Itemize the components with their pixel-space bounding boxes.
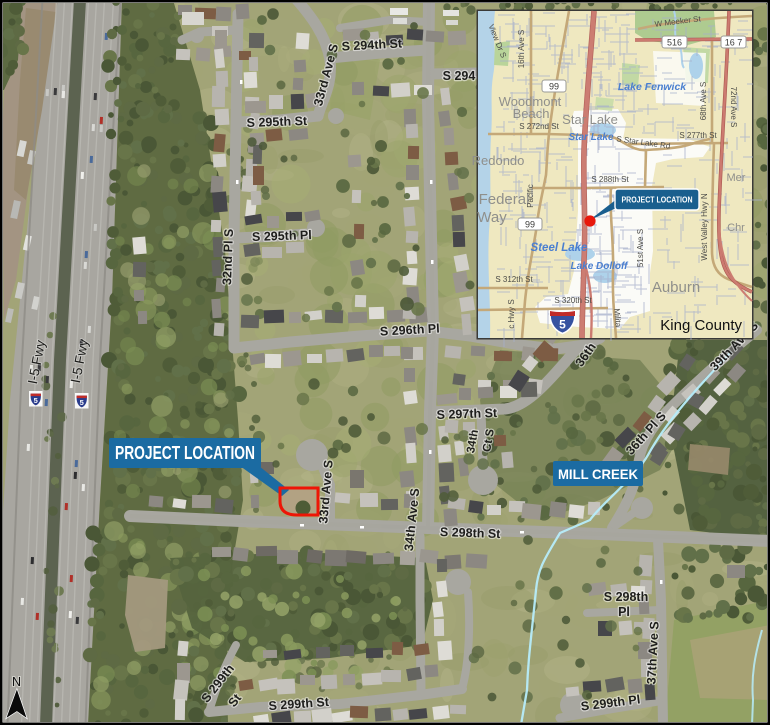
svg-text:Auburn: Auburn <box>652 279 700 296</box>
svg-text:Mer: Mer <box>727 172 746 184</box>
svg-text:S 298th St: S 298th St <box>440 525 502 541</box>
svg-text:Pl: Pl <box>618 605 630 619</box>
svg-text:Lake Dolloff: Lake Dolloff <box>570 261 629 272</box>
svg-text:MILL CREEK: MILL CREEK <box>558 466 638 482</box>
svg-text:516: 516 <box>667 38 682 48</box>
svg-text:5: 5 <box>34 396 38 405</box>
svg-text:S 320th St: S 320th St <box>554 296 592 305</box>
svg-text:72nd Ave S: 72nd Ave S <box>729 87 738 128</box>
svg-text:Way: Way <box>477 209 507 226</box>
svg-text:S 294: S 294 <box>443 69 476 83</box>
svg-text:Pacific: Pacific <box>526 184 535 208</box>
svg-text:Lake Fenwick: Lake Fenwick <box>618 81 687 93</box>
svg-text:16th Ave S: 16th Ave S <box>517 30 526 69</box>
svg-text:King County: King County <box>660 317 742 334</box>
svg-text:5: 5 <box>559 318 566 332</box>
svg-text:99: 99 <box>549 82 559 92</box>
svg-text:Chr: Chr <box>727 222 745 234</box>
svg-text:Beach: Beach <box>513 106 550 121</box>
svg-text:S 298th: S 298th <box>604 590 648 604</box>
svg-text:PROJECT LOCATION: PROJECT LOCATION <box>622 196 693 205</box>
svg-text:S 297th St: S 297th St <box>436 406 498 422</box>
svg-text:32nd Pl S: 32nd Pl S <box>220 228 236 285</box>
svg-text:51st Ave S: 51st Ave S <box>636 229 645 267</box>
svg-text:N: N <box>12 675 21 689</box>
svg-text:Star Lake: Star Lake <box>562 112 618 127</box>
svg-text:99: 99 <box>525 220 535 230</box>
svg-text:S 272nd St: S 272nd St <box>519 122 559 131</box>
svg-text:c Hwy S: c Hwy S <box>507 299 516 328</box>
svg-text:S 295th Pl: S 295th Pl <box>252 228 312 244</box>
svg-text:Federal: Federal <box>479 191 530 208</box>
svg-text:Redondo: Redondo <box>472 153 525 168</box>
svg-text:Star Lake: Star Lake <box>568 132 613 143</box>
svg-text:68th Ave S: 68th Ave S <box>699 82 708 121</box>
svg-text:S 312th St: S 312th St <box>495 275 533 284</box>
svg-text:Milita: Milita <box>612 308 623 328</box>
svg-text:S 295th St: S 295th St <box>246 114 308 130</box>
svg-text:West Valley Hwy N: West Valley Hwy N <box>700 193 709 260</box>
svg-text:Steel Lake: Steel Lake <box>531 242 588 254</box>
svg-text:5: 5 <box>80 398 84 407</box>
svg-text:S 288th St: S 288th St <box>591 175 629 184</box>
svg-text:S 277th St: S 277th St <box>679 131 717 140</box>
svg-text:16 7: 16 7 <box>725 38 743 48</box>
svg-text:PROJECT LOCATION: PROJECT LOCATION <box>115 442 255 463</box>
